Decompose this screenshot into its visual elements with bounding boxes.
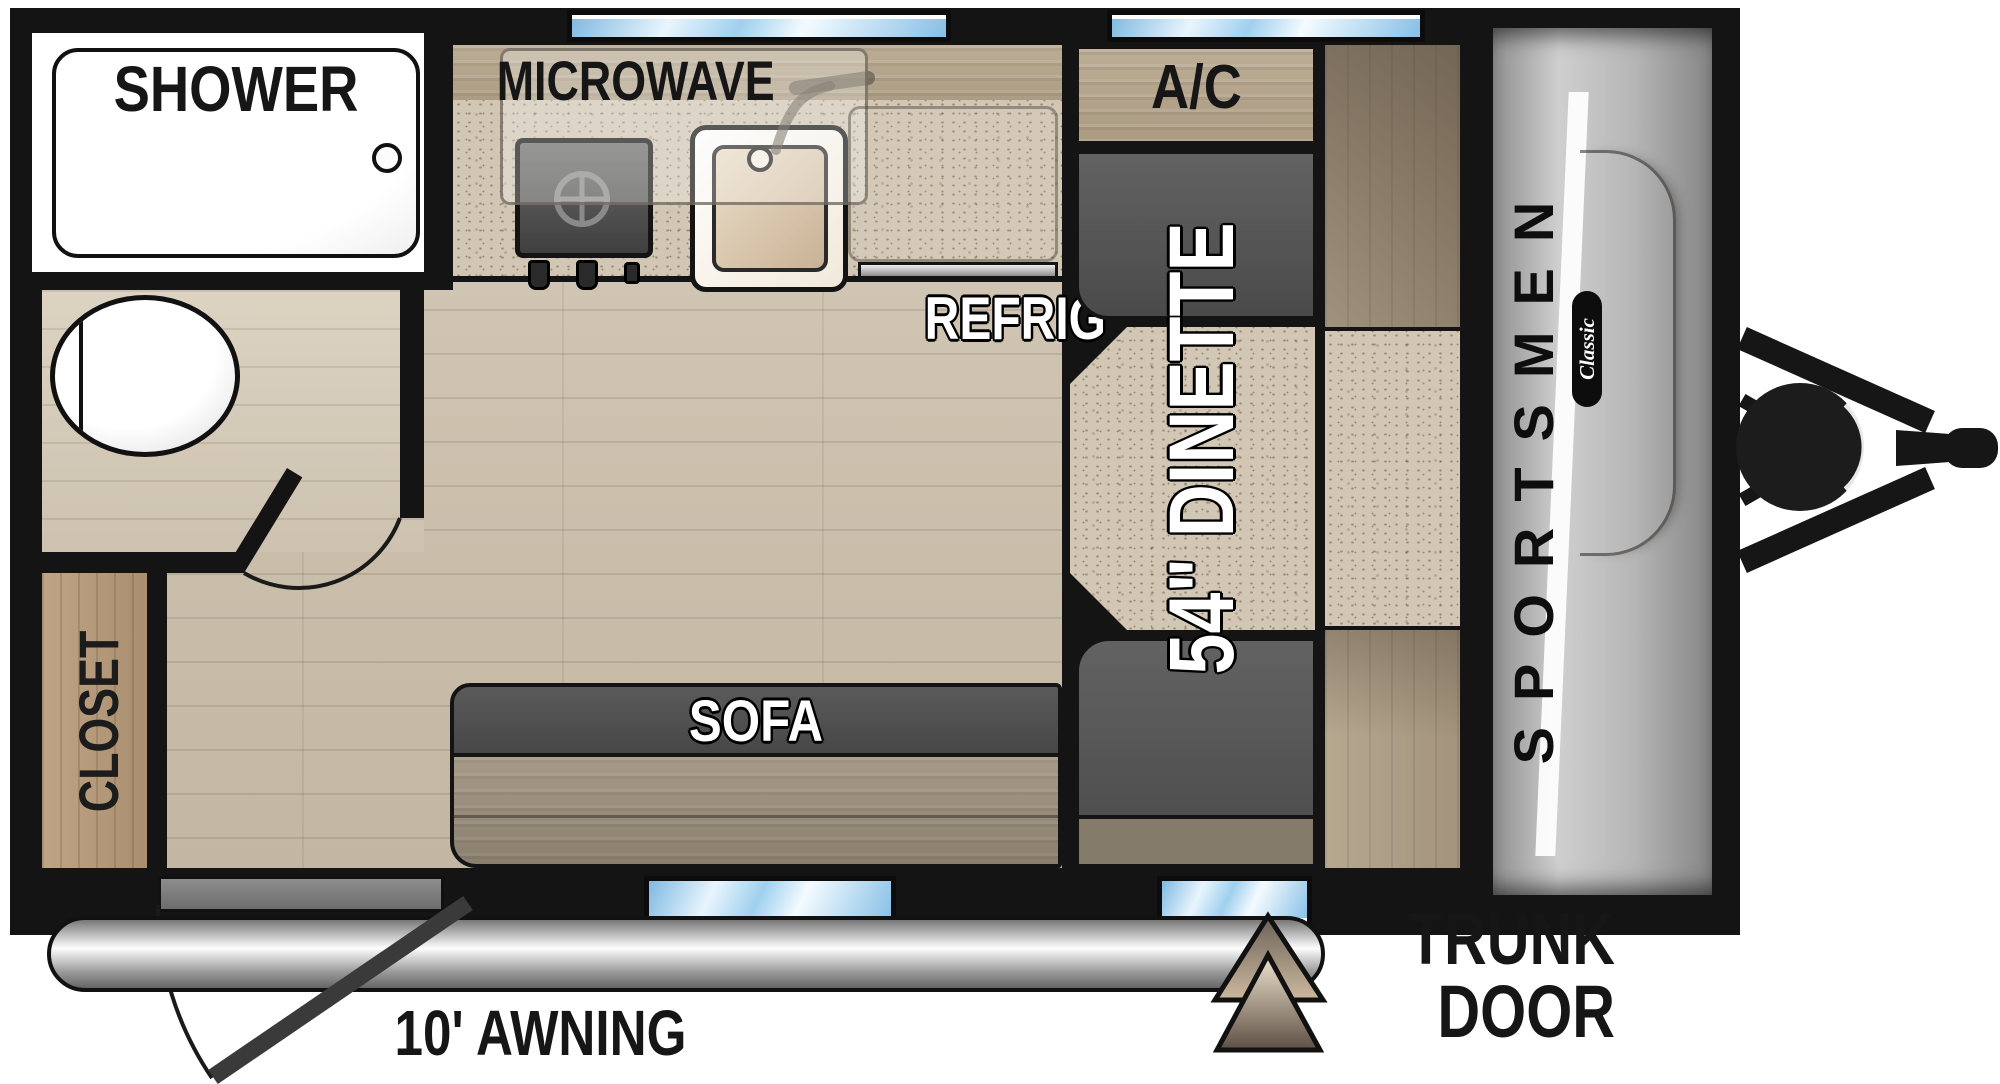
closet-label: CLOSET bbox=[70, 561, 128, 881]
front-platform-shade-bottom bbox=[1325, 630, 1460, 868]
stove-knob bbox=[528, 260, 550, 290]
window-top-left bbox=[567, 10, 951, 42]
classic-badge: Classic bbox=[1572, 291, 1602, 407]
exterior-bottom bbox=[0, 860, 2000, 1084]
front-platform-shade-top bbox=[1325, 45, 1460, 327]
dinette-seat-edge bbox=[1079, 815, 1313, 864]
dinette-label: 54" DINETTE bbox=[1156, 118, 1248, 778]
brand-label: SPORTSMEN bbox=[1507, 95, 1561, 845]
fridge-front bbox=[858, 262, 1058, 279]
trunk-door-label: TRUNK DOOR bbox=[1330, 903, 1615, 1048]
sofa-seat-line bbox=[454, 815, 1058, 818]
classic-badge-label: Classic bbox=[1575, 318, 1599, 380]
bathroom-bottom-wall bbox=[32, 552, 244, 573]
window-top-right bbox=[1107, 10, 1425, 42]
ac-label: A/C bbox=[1075, 52, 1317, 123]
front-platform-counter-band bbox=[1325, 327, 1460, 630]
bathroom-door-arc-icon bbox=[0, 0, 520, 640]
fridge-outline bbox=[848, 106, 1058, 262]
stove-knob bbox=[624, 262, 640, 284]
sofa-seat bbox=[450, 757, 1062, 868]
sofa-label: SOFA bbox=[450, 688, 1062, 755]
awning-label: 10' AWNING bbox=[320, 996, 760, 1070]
hitch-icon bbox=[1700, 250, 2000, 710]
closet-wall bbox=[147, 573, 167, 868]
floorplan-diagram: SHOWER CLOSET MICROWAVE REFRIG bbox=[0, 0, 2000, 1084]
microwave-label: MICROWAVE bbox=[462, 48, 782, 113]
awning-tube-icon bbox=[49, 918, 1323, 990]
propane-tank-icon bbox=[1736, 383, 1864, 511]
stove-knob bbox=[576, 260, 598, 290]
